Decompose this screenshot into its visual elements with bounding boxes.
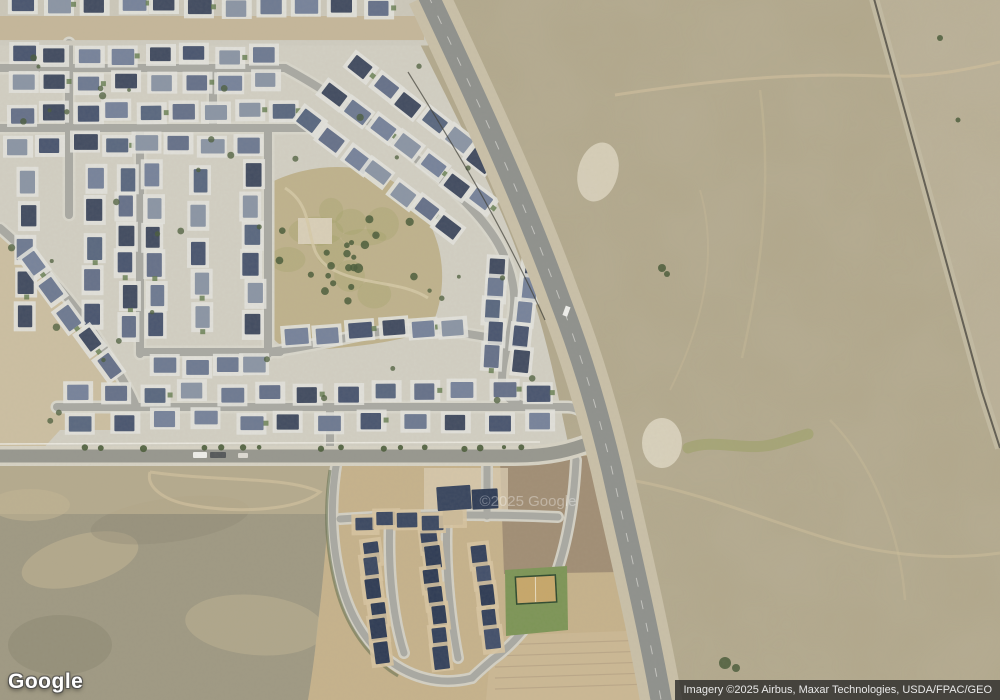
google-logo[interactable]: Google: [8, 670, 83, 694]
satellite-imagery-canvas: ©2025 Google: [0, 0, 1000, 700]
satellite-map-viewport[interactable]: ©2025 Google Google Imagery ©2025 Airbus…: [0, 0, 1000, 700]
watermark: ©2025 Google: [480, 493, 577, 510]
google-watermark: ©2025 Google: [480, 493, 577, 510]
imagery-attribution: Imagery ©2025 Airbus, Maxar Technologies…: [675, 680, 1000, 700]
texture-overlay: [0, 0, 1000, 700]
